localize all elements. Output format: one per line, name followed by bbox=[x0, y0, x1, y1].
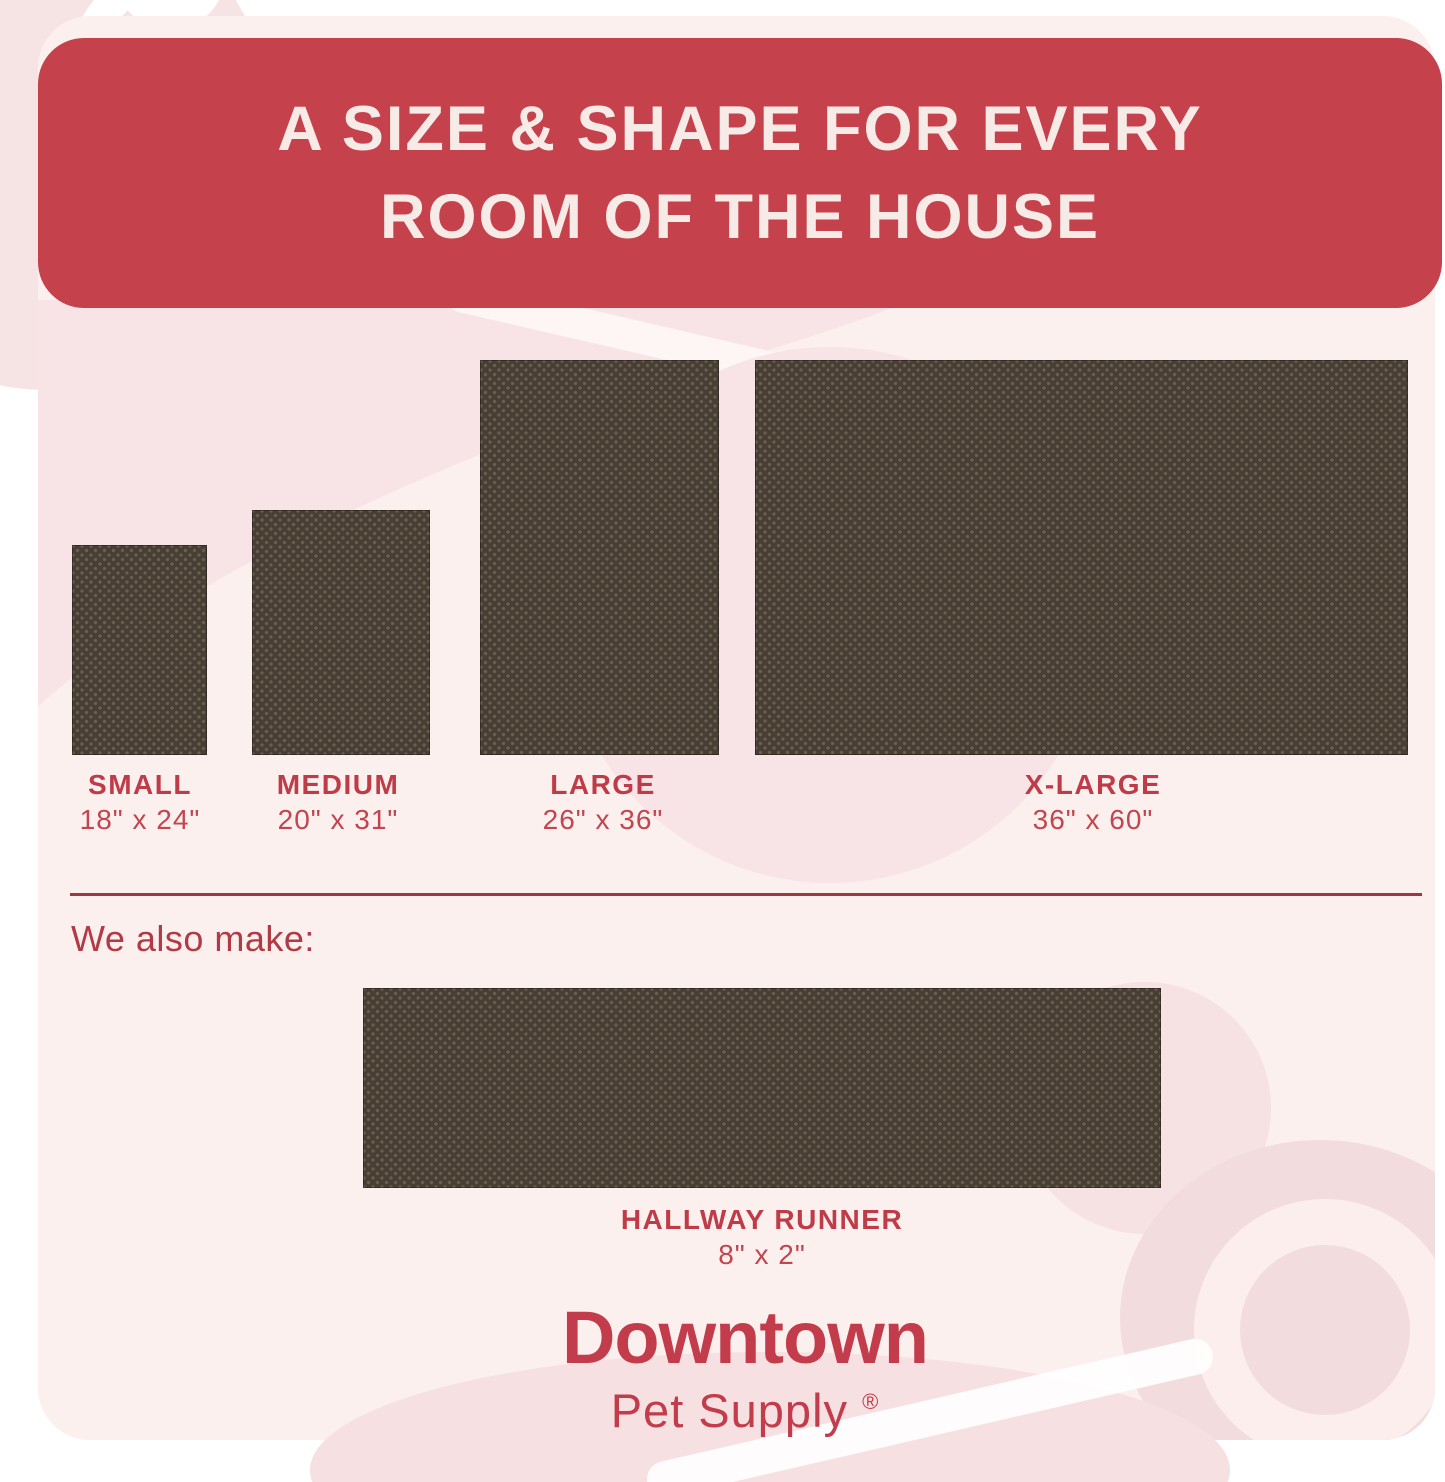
rug-swatch-large bbox=[480, 360, 719, 755]
size-dimensions: 8" x 2" bbox=[512, 1237, 1012, 1273]
size-label-hallway-runner: HALLWAY RUNNER 8" x 2" bbox=[512, 1203, 1012, 1273]
size-name: HALLWAY RUNNER bbox=[512, 1203, 1012, 1237]
size-dimensions: 36" x 60" bbox=[863, 802, 1323, 838]
rug-swatch-xlarge bbox=[755, 360, 1408, 755]
size-label-medium: MEDIUM 20" x 31" bbox=[248, 768, 428, 838]
size-label-small: SMALL 18" x 24" bbox=[45, 768, 235, 838]
size-dimensions: 20" x 31" bbox=[248, 802, 428, 838]
page-title-line1: A SIZE & SHAPE FOR EVERY bbox=[277, 85, 1202, 173]
brand-logo: Downtown Pet Supply ® bbox=[495, 1300, 995, 1437]
brand-tagline: Pet Supply ® bbox=[495, 1376, 995, 1437]
size-name: SMALL bbox=[45, 768, 235, 802]
brand-tagline-text: Pet Supply bbox=[611, 1384, 848, 1437]
page-title-line2: ROOM OF THE HOUSE bbox=[380, 173, 1100, 261]
brand-name: Downtown bbox=[495, 1300, 995, 1376]
size-name: LARGE bbox=[483, 768, 723, 802]
section-divider bbox=[70, 893, 1422, 896]
infographic-canvas: A SIZE & SHAPE FOR EVERY ROOM OF THE HOU… bbox=[0, 0, 1445, 1482]
also-make-text: We also make: bbox=[71, 918, 315, 960]
size-label-large: LARGE 26" x 36" bbox=[483, 768, 723, 838]
size-dimensions: 18" x 24" bbox=[45, 802, 235, 838]
rug-swatch-small bbox=[72, 545, 207, 755]
rug-swatch-hallway-runner bbox=[363, 988, 1161, 1188]
size-label-xlarge: X-LARGE 36" x 60" bbox=[863, 768, 1323, 838]
registered-trademark-symbol: ® bbox=[862, 1389, 879, 1414]
header-banner: A SIZE & SHAPE FOR EVERY ROOM OF THE HOU… bbox=[38, 38, 1442, 308]
size-name: MEDIUM bbox=[248, 768, 428, 802]
size-name: X-LARGE bbox=[863, 768, 1323, 802]
size-dimensions: 26" x 36" bbox=[483, 802, 723, 838]
rug-swatch-medium bbox=[252, 510, 430, 755]
